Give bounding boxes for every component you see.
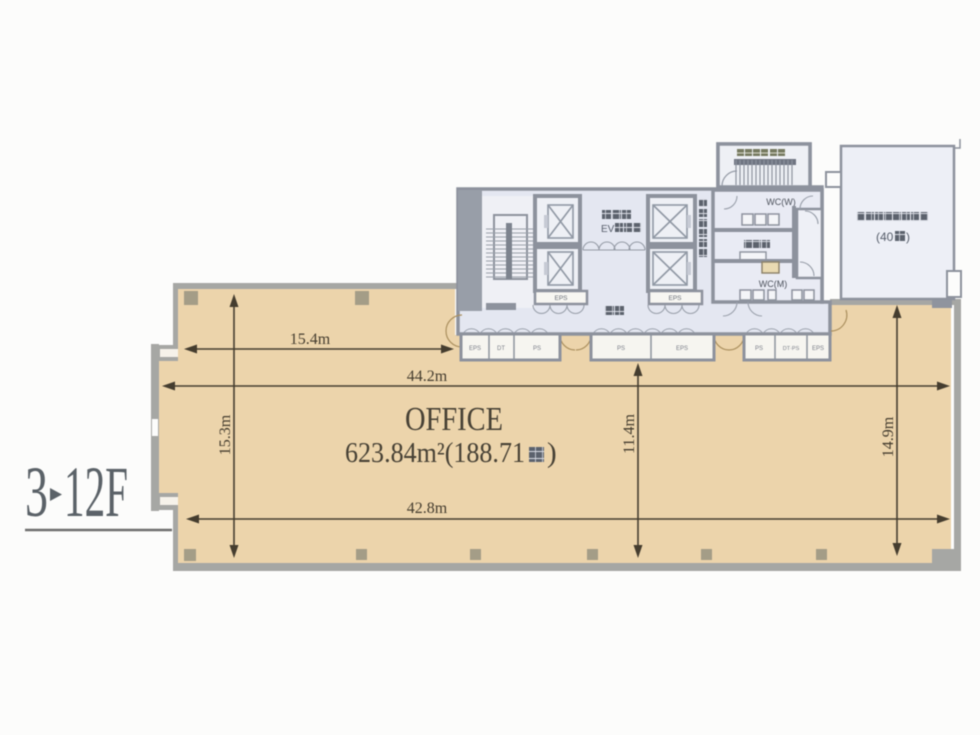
svg-text:WC(W): WC(W) bbox=[766, 197, 795, 207]
svg-text:): ) bbox=[547, 437, 557, 469]
svg-text:12F: 12F bbox=[64, 452, 128, 532]
svg-text:15.4m: 15.4m bbox=[290, 331, 331, 348]
svg-text:14.9m: 14.9m bbox=[880, 416, 897, 457]
svg-text:11.4m: 11.4m bbox=[621, 414, 638, 454]
svg-text:EV: EV bbox=[601, 224, 615, 235]
svg-text:623.84m²(188.71: 623.84m²(188.71 bbox=[345, 437, 525, 469]
svg-text:PS: PS bbox=[755, 346, 763, 352]
svg-text:(40: (40 bbox=[876, 230, 894, 244]
svg-text:PS: PS bbox=[617, 346, 625, 352]
svg-text:): ) bbox=[906, 230, 910, 244]
svg-text:EPS: EPS bbox=[668, 295, 682, 302]
svg-text:EPS: EPS bbox=[676, 346, 688, 352]
svg-text:15.3m: 15.3m bbox=[217, 414, 234, 455]
svg-text:EPS: EPS bbox=[554, 295, 568, 302]
svg-text:OFFICE: OFFICE bbox=[405, 401, 503, 438]
svg-text:3: 3 bbox=[25, 452, 48, 532]
svg-text:42.8m: 42.8m bbox=[407, 500, 448, 517]
svg-text:DT·PS: DT·PS bbox=[783, 346, 800, 352]
svg-text:PS: PS bbox=[533, 346, 541, 352]
svg-text:44.2m: 44.2m bbox=[407, 368, 448, 385]
svg-text:EPS: EPS bbox=[469, 346, 481, 352]
svg-text:DT: DT bbox=[497, 346, 505, 352]
svg-text:EPS: EPS bbox=[812, 346, 824, 352]
svg-text:WC(M): WC(M) bbox=[759, 279, 788, 289]
